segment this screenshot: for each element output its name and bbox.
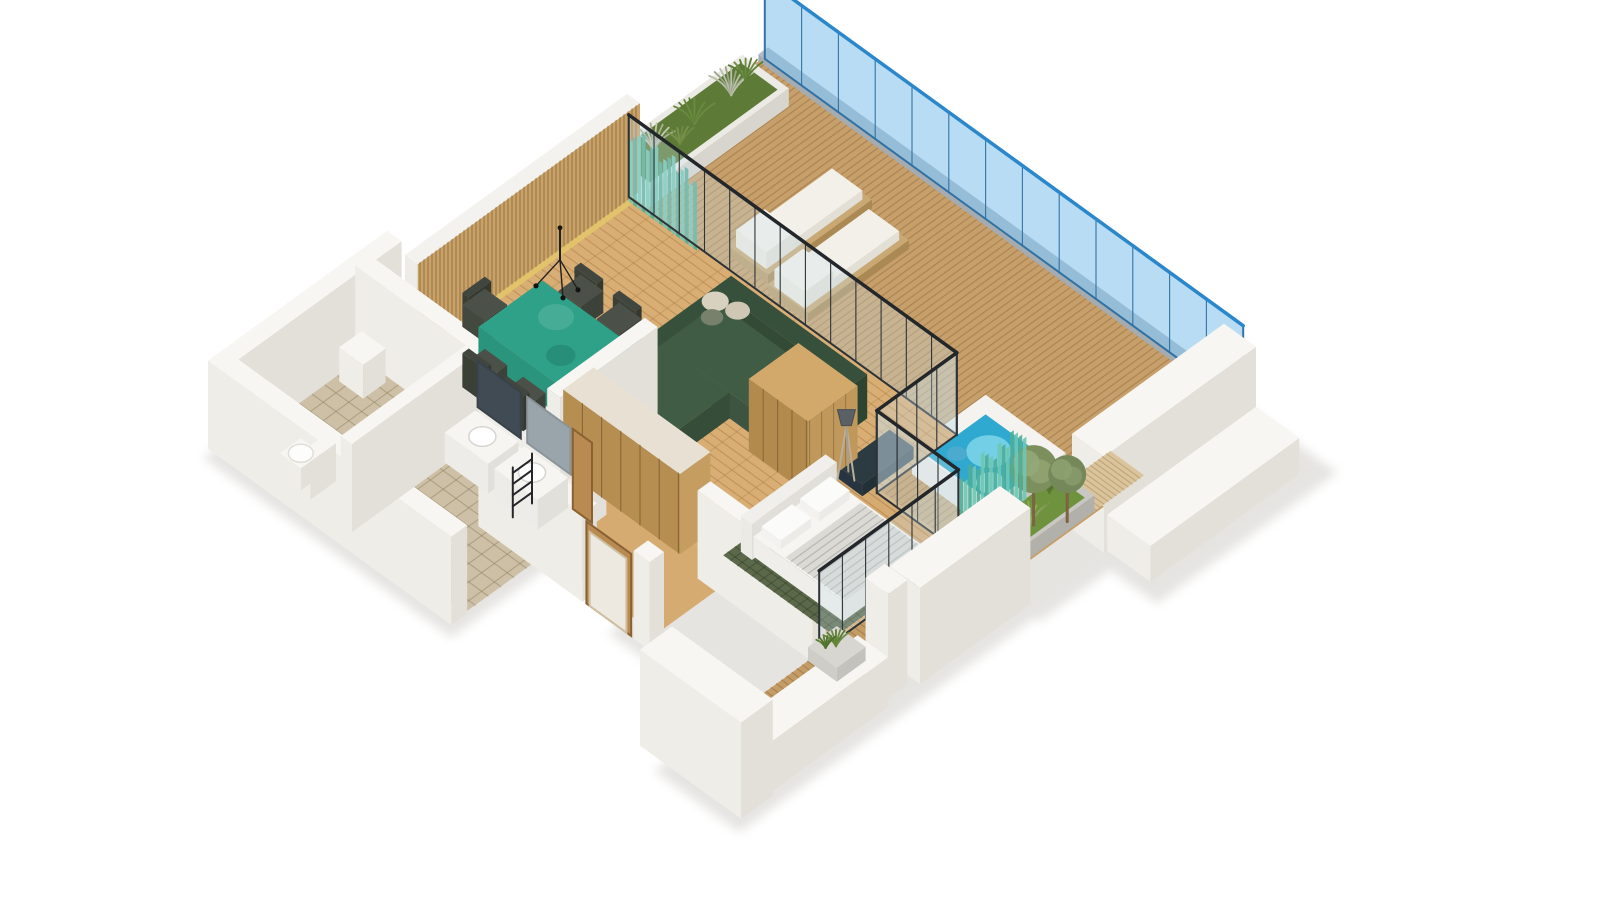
sofa-pillow [702,292,729,312]
floor-plan-stage: Isometric 3D floor plan rendering - pent… [0,0,1600,900]
marble-veining [538,304,574,330]
sofa-pillow-olive [701,309,724,325]
marble-veining [546,345,575,366]
wash-basin [469,427,496,447]
isometric-floor-plan-rendering [0,0,1600,900]
water-shadow [947,446,967,461]
toilet-seat [288,444,313,462]
sofa-pillow [725,302,750,320]
entry-wall-stub [634,540,664,650]
building [208,0,1299,819]
bathroom-door-wood [573,429,592,523]
